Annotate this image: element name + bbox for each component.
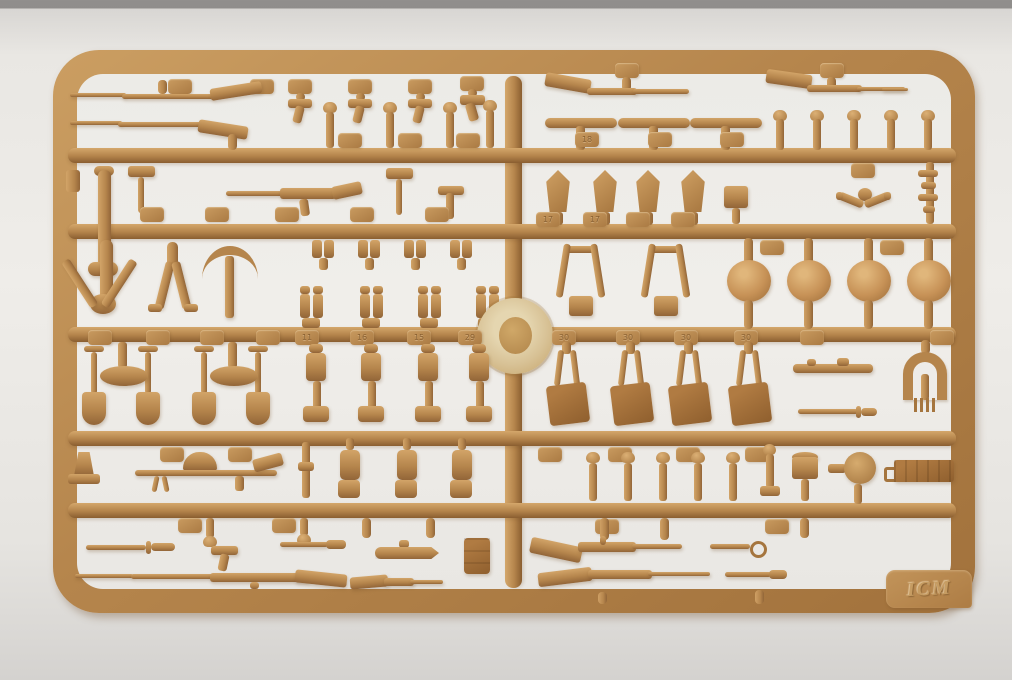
runner-stub [755,590,764,604]
injection-gate-core [499,317,532,354]
part-number-tab: 18 [575,132,599,147]
pouch-pair-part [312,240,336,270]
strap-canteen-part [645,244,687,320]
canteen-part [466,344,494,428]
bayonet-part [725,568,791,582]
v-claw-part [836,182,894,224]
dome-helmet-part [847,260,891,302]
grenade-part [382,102,398,148]
bayonet-part [798,406,880,420]
grenade-part [322,102,338,148]
part-number-tab: 15 [407,330,431,345]
grenade-part [760,444,780,502]
equipment-part [360,286,384,328]
carbine-part [350,574,445,594]
runner-stub [426,518,435,538]
dome-helmet-part [787,260,831,302]
sprue-photo: 18 [0,0,1012,680]
pistol-part [348,79,378,125]
pistol-part [408,79,438,125]
sprue-tab [88,330,112,345]
grenade-part [655,450,671,502]
bayonet-part [710,538,764,556]
rifle-with-bayonet-part [538,566,712,594]
sprue-tab [626,212,650,227]
sprue-tab [160,447,184,462]
sprue-tab [146,330,170,345]
grenade-part [846,110,862,152]
backpack-part [610,342,656,430]
bipod-part [140,242,206,316]
shovel-set-part [80,342,170,428]
rifle-with-bayonet-part [68,84,268,106]
grenade-part [883,110,899,152]
canteen-part [415,344,443,428]
sprue-tab [800,330,824,345]
runner-stub [598,592,607,604]
rifle-with-bayonet-part [530,534,686,568]
equipment-part [338,438,362,500]
rifle-with-bayonet-part [762,70,910,102]
drum-magazine-part [792,452,820,502]
runner-bar-4 [68,431,956,446]
canteen-part [358,344,386,428]
sprue-tab [648,132,672,147]
sprue-tab [456,133,480,148]
sprue-tab [398,133,422,148]
sprue-tab [350,207,374,222]
brush-holder-part [900,340,952,422]
part-number-tab: 17 [583,212,607,227]
part-number-tab: 16 [350,330,374,345]
pouch-pair-part [450,240,474,270]
sprue-tab [425,207,449,222]
sprue-tab [228,447,252,462]
pistol-part [288,79,318,125]
canteen-part [303,344,331,428]
dome-helmet-part [727,260,771,302]
grenade-part [772,110,788,152]
grenade-part [482,100,498,148]
sprue-tab [140,207,164,222]
grenade-part [725,450,741,502]
sprue-tab [880,240,904,255]
pouch-pair-part [358,240,382,270]
equipment-part [395,438,419,500]
scabbard-part [375,540,443,562]
icm-logo-text: ICM [906,576,952,601]
detail-rod-part [918,162,940,228]
runner-bar-2 [68,224,956,239]
sprue-tab [930,330,954,345]
axe-part [386,166,418,216]
sprue-tab [765,519,789,534]
runner-stub [804,300,813,329]
rifle-with-bayonet-part [75,566,353,592]
grenade-part [809,110,825,152]
sprue-tab [200,330,224,345]
fitting-part [724,186,750,226]
runner-stub [228,134,237,150]
rifle-with-bayonet-part [545,72,695,102]
sprue-tab [178,518,202,533]
sprue-tab [256,330,280,345]
sprue-tab [671,212,695,227]
part-number-tab: 11 [295,330,319,345]
backpack-part [546,342,592,430]
bracket-part [68,450,102,488]
ammo-box-part [884,458,956,488]
shovel-set-part [190,342,280,428]
runner-bar-5 [68,503,956,518]
detail-rod-part [298,442,314,500]
equipment-part [300,286,324,328]
machine-gun-part [135,450,287,498]
rifle-body-part [793,358,879,378]
sprue-tab [760,240,784,255]
part-number-tab: 17 [536,212,560,227]
sprue-tab [275,207,299,222]
sprue-tab [538,447,562,462]
strap-canteen-part [560,244,602,320]
sprue-tab [720,132,744,147]
equipment-part [450,438,474,500]
pouch-part [464,538,494,576]
sprue-tab [851,163,875,178]
v-frame-part [68,250,134,308]
backpack-part [668,342,714,430]
pickaxe-part [200,246,262,322]
runner-stub [744,300,753,329]
runner-stub [800,518,809,538]
flare-gun-part [828,450,884,504]
grenade-part [585,450,601,502]
part-number-tab: 29 [458,330,482,345]
pouch-pair-part [404,240,428,270]
runner-stub [924,300,933,329]
bayonet-part [280,538,350,552]
backpack-part [728,342,774,430]
runner-stub [362,518,371,538]
sprue-tab [272,518,296,533]
icm-logo-tab: ICM [886,570,972,608]
dome-helmet-part [907,260,951,302]
sprue-tab [205,207,229,222]
grenade-part [690,450,706,502]
grenade-part [920,110,936,152]
fitting-part [66,170,80,192]
grenade-part [620,450,636,502]
equipment-part [418,286,442,328]
runner-stub [864,300,873,329]
bayonet-part [86,540,178,556]
sprue-tab [338,133,362,148]
